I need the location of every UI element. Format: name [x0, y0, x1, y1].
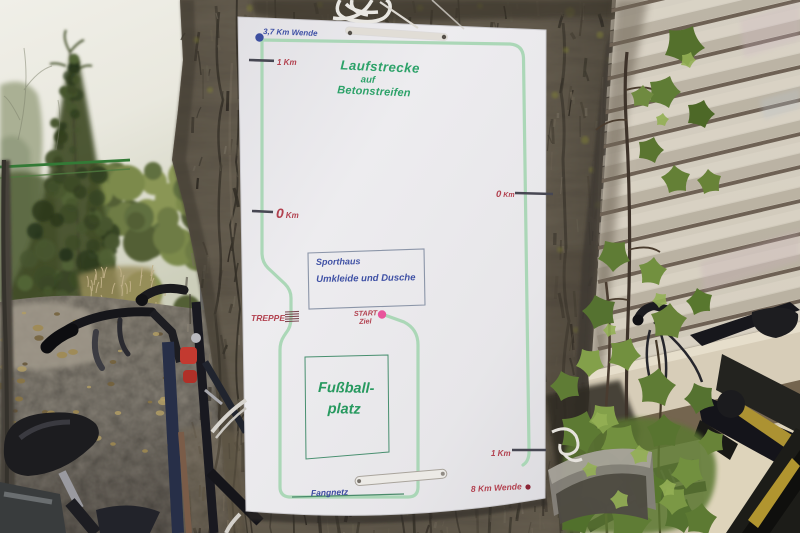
svg-text:1 Km: 1 Km — [277, 58, 297, 67]
svg-text:Fangnetz: Fangnetz — [311, 487, 349, 498]
svg-text:TREPPE: TREPPE — [251, 313, 285, 323]
svg-text:Sporthaus: Sporthaus — [316, 256, 361, 267]
svg-text:platz: platz — [327, 401, 362, 418]
svg-text:3,7 Km Wende: 3,7 Km Wende — [263, 27, 318, 38]
svg-text:Umkleide und Dusche: Umkleide und Dusche — [316, 272, 416, 285]
svg-text:Ziel: Ziel — [358, 316, 373, 325]
svg-text:auf: auf — [361, 74, 377, 86]
svg-text:Fußball-: Fußball- — [318, 380, 375, 397]
svg-text:1 Km: 1 Km — [491, 449, 511, 458]
